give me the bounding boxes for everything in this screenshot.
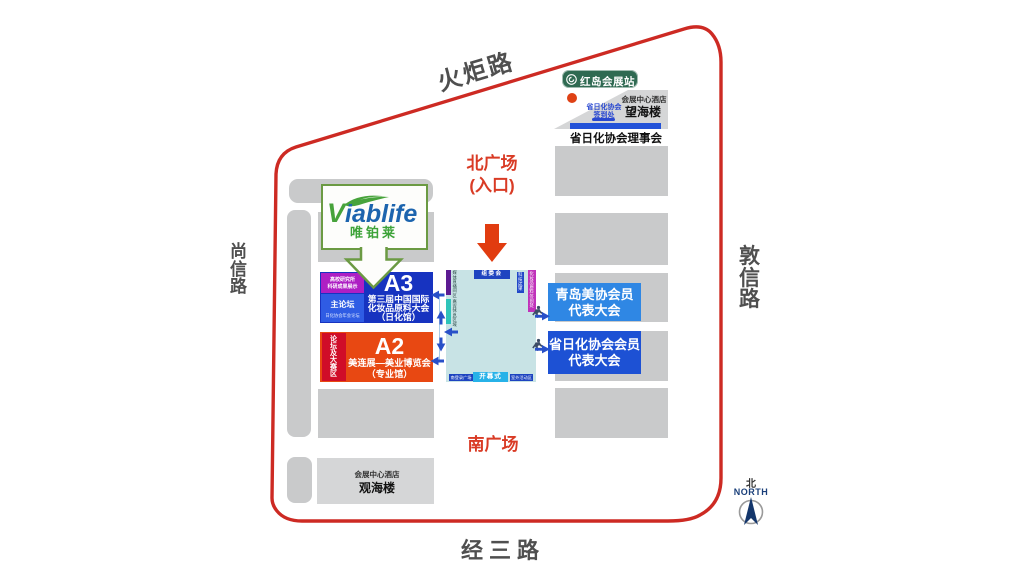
svg-text:V: V xyxy=(327,198,347,227)
